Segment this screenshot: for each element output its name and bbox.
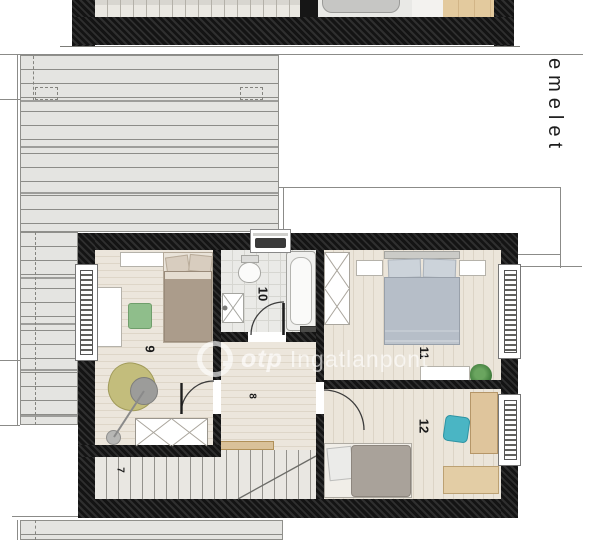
floor-title: emelet (543, 58, 566, 154)
staircase-treads (95, 450, 318, 499)
room-label-8: 8 (247, 393, 258, 399)
room11-nightstand-left (356, 260, 383, 276)
floor-lamp-base (106, 430, 121, 445)
room12-cabinet (443, 466, 499, 494)
roof-dash-line-b (35, 232, 36, 425)
wall-bathroom-left-seg (221, 332, 248, 342)
floor-lamp-head (130, 377, 158, 405)
upper-level-wall-stub (300, 0, 318, 17)
radiator-room11 (504, 270, 517, 353)
window-bathroom-top (250, 229, 291, 253)
room9-rug (128, 303, 152, 329)
roof-panel-bottom (20, 520, 283, 540)
room11-bed-headboard (384, 251, 460, 259)
upper-level-landing (412, 0, 443, 17)
wall-room9-hall-upper (213, 250, 221, 380)
roof-dash-line-c (35, 520, 36, 540)
room12-chair (442, 414, 470, 443)
room9-bed-duvet (164, 271, 212, 342)
radiator-room12 (504, 400, 517, 460)
window-left (75, 264, 98, 361)
ref-line-roof-edge-b (17, 520, 18, 540)
upper-level-wall-underline (60, 46, 520, 47)
roof-panel-main (20, 55, 279, 232)
floorplan-canvas: emelet (0, 0, 600, 540)
bathtub-basin (290, 257, 312, 325)
roof-window-right (240, 87, 263, 100)
room11-bed-duvet (384, 277, 460, 345)
room-label-11: 11 (417, 347, 431, 360)
room12-bed-blanket (351, 445, 411, 497)
ref-line-right-b (518, 266, 582, 267)
roof-window-left (35, 87, 58, 100)
room12-desk (470, 392, 498, 454)
stair-top-step (218, 441, 274, 450)
roof-dash-line-a (33, 56, 34, 100)
wall-room9-stairs (78, 445, 221, 457)
wall-hall-room12 (316, 414, 324, 499)
room-label-7: 7 (115, 467, 126, 473)
room11-bed-pillow-left (388, 258, 422, 278)
upper-level-bathtub (322, 0, 400, 13)
ref-line-roof-edge (17, 55, 18, 425)
window-right-room11 (498, 264, 521, 359)
room9-desk (95, 287, 122, 347)
ref-line-roof-vert (283, 187, 284, 233)
ref-line-right-a (518, 254, 560, 255)
room-label-10: 10 (256, 287, 271, 301)
roof-panel-side (20, 232, 78, 425)
wall-bathroom-right-seg (286, 332, 316, 342)
room9-dresser (135, 418, 208, 447)
wall-room9-hall-lower (213, 414, 221, 445)
room11-nightstand-right (459, 260, 486, 276)
upper-level-wood-floor (443, 0, 494, 17)
ref-line-left-low (0, 425, 20, 426)
window-bathroom-sill (253, 233, 288, 236)
window-right-room12 (498, 394, 521, 466)
bathroom-sink (222, 293, 244, 323)
room-label-9: 9 (143, 345, 158, 352)
upper-level-wall-band (72, 17, 514, 45)
room11-wardrobe (324, 252, 350, 325)
room-label-12: 12 (417, 419, 432, 433)
toilet-bowl (238, 262, 261, 283)
ref-line-right-vert (560, 187, 561, 268)
wall-hall-room11 (316, 250, 324, 382)
window-bathroom-sash (255, 238, 286, 248)
wall-top (78, 233, 518, 250)
room9-wall-shelf (120, 252, 168, 267)
room11-bed-pillow-right (423, 258, 457, 278)
ref-line-eaves (279, 187, 560, 188)
upper-level-balcony-strip (95, 0, 300, 17)
radiator-left (80, 270, 93, 355)
wall-room11-room12 (324, 380, 501, 389)
hall-floor (221, 342, 316, 450)
wall-bottom (78, 499, 518, 518)
